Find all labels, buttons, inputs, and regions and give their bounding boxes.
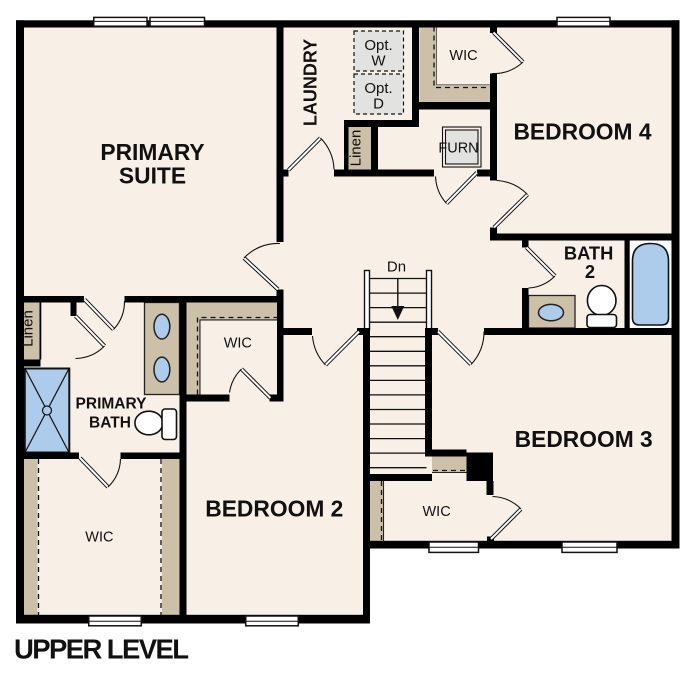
- svg-text:BEDROOM 3: BEDROOM 3: [515, 426, 653, 452]
- svg-text:Linen: Linen: [19, 310, 36, 347]
- svg-text:WIC: WIC: [224, 335, 252, 351]
- svg-text:PRIMARY: PRIMARY: [100, 139, 204, 165]
- svg-text:Opt.: Opt.: [364, 37, 392, 54]
- svg-text:UPPER LEVEL: UPPER LEVEL: [14, 634, 188, 665]
- svg-text:WIC: WIC: [85, 530, 113, 546]
- svg-text:Dn: Dn: [387, 259, 406, 276]
- svg-text:BEDROOM 2: BEDROOM 2: [205, 496, 343, 522]
- svg-text:D: D: [373, 96, 384, 113]
- svg-text:LAUNDRY: LAUNDRY: [301, 39, 321, 126]
- svg-text:Opt.: Opt.: [364, 80, 392, 97]
- svg-text:PRIMARY: PRIMARY: [76, 396, 148, 413]
- svg-text:SUITE: SUITE: [119, 163, 186, 189]
- svg-text:2: 2: [585, 261, 595, 282]
- svg-text:WIC: WIC: [449, 48, 477, 64]
- svg-text:BATH: BATH: [89, 415, 131, 432]
- svg-text:WIC: WIC: [423, 504, 451, 520]
- svg-text:BEDROOM 4: BEDROOM 4: [513, 119, 651, 145]
- svg-text:W: W: [371, 53, 386, 70]
- svg-text:FURN: FURN: [438, 141, 478, 157]
- svg-text:Linen: Linen: [347, 130, 364, 167]
